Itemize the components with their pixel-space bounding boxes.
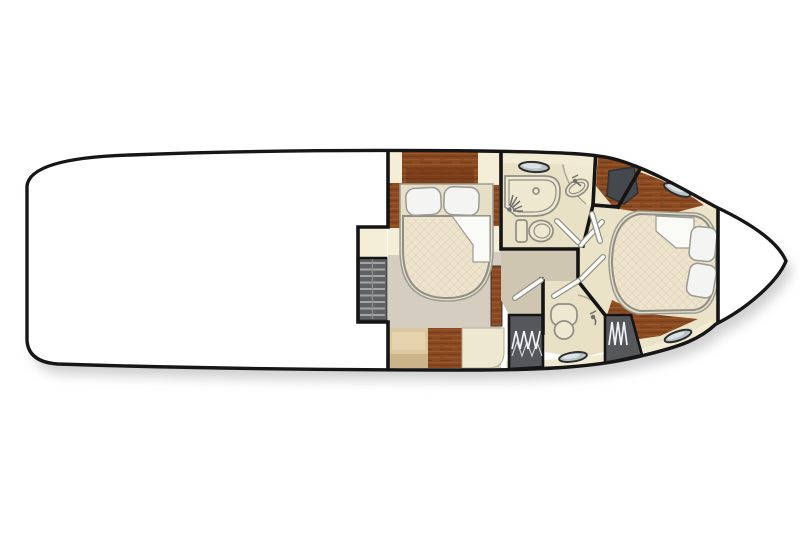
yacht-floor-plan: Motor yacht lower-deck floor plan, top v…	[0, 0, 800, 533]
shower-stall	[505, 176, 560, 216]
headboard-shelf	[406, 168, 474, 184]
stair-landing	[358, 227, 387, 258]
mid-berth	[400, 184, 493, 301]
wall-vestibule	[593, 205, 618, 207]
forward-pillow-top	[688, 226, 717, 263]
hull-trim-top-mid	[502, 158, 602, 162]
floor-plan-image: Motor yacht lower-deck floor plan, top v…	[0, 0, 800, 533]
cream-unit	[462, 328, 504, 368]
side-dresser	[491, 266, 502, 326]
shower-drain	[533, 188, 539, 194]
mid-pillow-left	[405, 187, 441, 216]
day-head-toilet	[516, 220, 553, 242]
toilet-tank	[516, 220, 527, 242]
cabinet-top-right	[478, 148, 499, 185]
cabinet-top-left	[388, 148, 402, 183]
wood-cabinet	[428, 328, 462, 368]
interior	[358, 148, 719, 372]
spring-panel-aft	[509, 315, 543, 369]
mid-cabin-aft-furniture	[389, 328, 504, 368]
toilet-bowl-front	[555, 321, 574, 339]
bench-front	[389, 354, 428, 368]
forward-pillow-bottom	[685, 262, 717, 299]
bench-cushion	[392, 332, 425, 350]
mid-pillow-right	[444, 186, 480, 215]
mid-cabin	[388, 148, 504, 372]
companionway-stairs	[358, 227, 387, 320]
forward-toilet	[551, 304, 577, 339]
forward-berth	[609, 211, 719, 314]
